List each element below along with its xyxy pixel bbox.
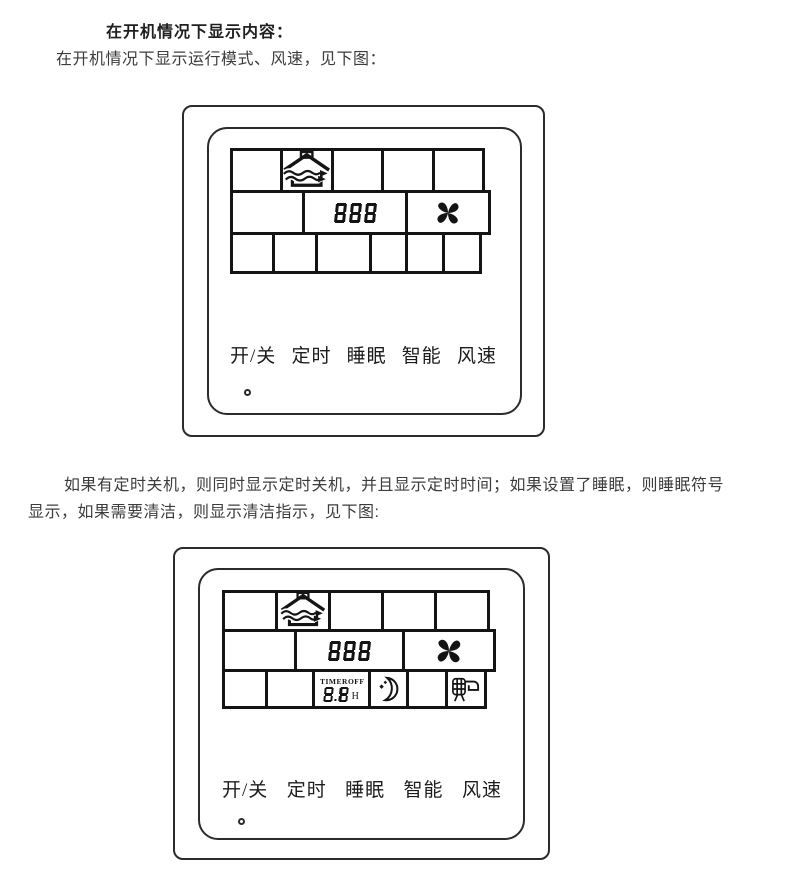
lcd-cell [432,148,485,193]
lcd-cell [230,190,305,235]
lcd-cell-fan [405,190,491,235]
lcd-cell [434,590,490,632]
smart-button-label: 智能 [402,341,442,368]
button-row: 开/关 定时 睡眠 智能 风速 [230,341,497,368]
moon-sleep-icon [376,676,402,702]
timer-labels: TIMER OFF [318,677,365,686]
lcd-cell [406,669,448,709]
timer-hours-display [323,687,349,702]
lcd-cell [331,148,384,193]
indicator-led [244,389,251,396]
lcd-row-main [230,190,497,235]
paragraph-line-2: 显示，如果需要清洁，则显示清洁指示，见下图: [28,498,379,522]
timer-off-label: OFF [348,677,365,686]
controller-panel-timer: TIMER OFF H [173,547,550,860]
lcd-cell [265,669,315,709]
house-airflow-icon [280,592,326,630]
sleep-button-label: 睡眠 [345,775,385,802]
controller-panel-power-on: 开/关 定时 睡眠 智能 风速 [182,105,545,437]
lcd-cell [369,232,408,274]
button-row: 开/关 定时 睡眠 智能 风速 [222,775,502,802]
lcd-cell [272,232,318,274]
lcd-cell [442,232,482,274]
lcd-row-mode [222,590,502,632]
timer-time: H [318,687,365,702]
lcd-cell-mode [275,590,331,632]
clean-filter-icon [451,675,481,703]
power-button-label: 开/关 [230,341,276,368]
timer-button-label: 定时 [291,341,331,368]
lcd-cell-temperature [294,629,405,672]
lcd-cell-mode [280,148,333,193]
lcd-cell-temperature [302,190,408,235]
house-airflow-icon [283,151,330,191]
lcd-row-mode [230,148,497,193]
controller-faceplate: TIMER OFF H [198,568,525,840]
lcd-display: TIMER OFF H [222,590,502,709]
fan-icon [434,199,462,227]
timer-unit-label: H [352,692,359,702]
paragraph-line-1: 如果有定时关机，则同时显示定时关机，并且显示定时时间；如果设置了睡眠，则睡眠符号 [64,471,724,495]
fanspeed-button-label: 风速 [462,775,502,802]
lcd-cell [222,590,278,632]
lcd-cell [315,232,372,274]
fan-icon [434,636,464,666]
temperature-display [328,641,371,661]
intro-text: 在开机情况下显示运行模式、风速，见下图： [56,45,386,69]
temperature-display [333,203,376,223]
lcd-cell-fan [402,629,496,672]
lcd-cell [222,669,268,709]
lcd-cell [381,590,437,632]
smart-button-label: 智能 [404,775,444,802]
indicator-led [238,818,245,825]
page-title: 在开机情况下显示内容： [106,18,293,42]
timer-label: TIMER [320,677,348,686]
lcd-cell [230,232,275,274]
lcd-row-status: TIMER OFF H [222,669,502,709]
lcd-cell [381,148,434,193]
lcd-cell [230,148,283,193]
power-button-label: 开/关 [222,775,268,802]
lcd-cell [328,590,384,632]
lcd-cell [405,232,445,274]
lcd-cell [222,629,297,672]
fanspeed-button-label: 风速 [457,341,497,368]
lcd-row-main [222,629,502,672]
lcd-cell-timer-off: TIMER OFF H [312,669,371,709]
sleep-button-label: 睡眠 [347,341,387,368]
controller-faceplate: 开/关 定时 睡眠 智能 风速 [207,127,522,415]
timer-button-label: 定时 [287,775,327,802]
lcd-cell-clean [445,669,487,709]
lcd-cell-sleep [368,669,409,709]
lcd-display [230,148,497,274]
lcd-row-status [230,232,497,274]
